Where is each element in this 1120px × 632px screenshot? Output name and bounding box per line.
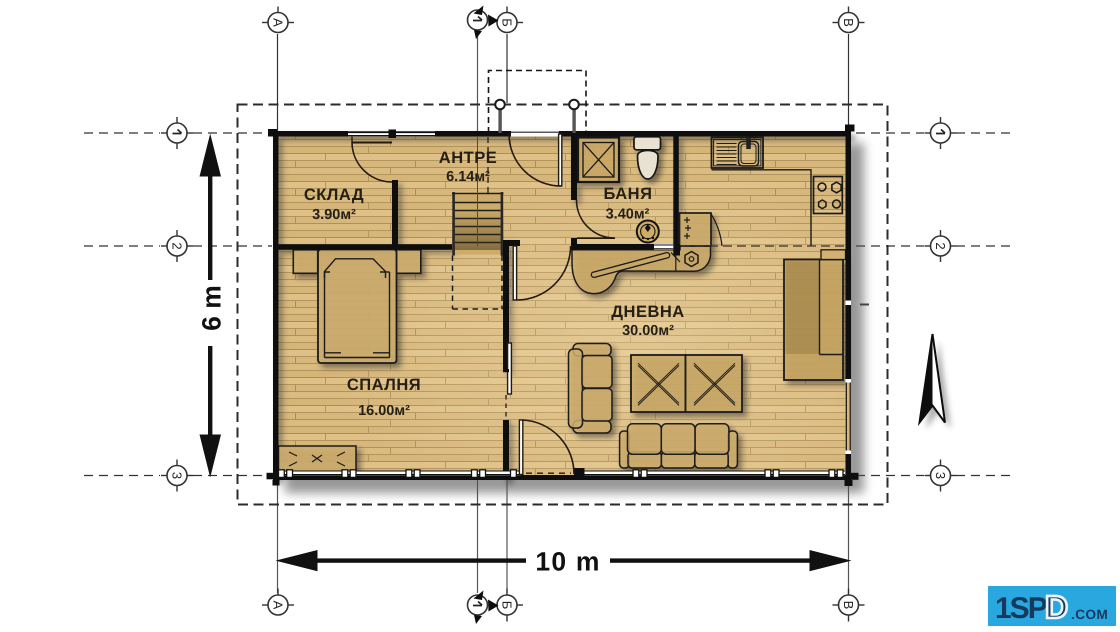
svg-text:А: А	[271, 18, 286, 27]
svg-text:ДНЕВНА: ДНЕВНА	[611, 303, 684, 321]
svg-text:БАНЯ: БАНЯ	[604, 185, 653, 203]
svg-text:АНТРЕ: АНТРЕ	[439, 149, 497, 167]
svg-text:3: 3	[170, 472, 185, 479]
svg-text:3.90м²: 3.90м²	[312, 207, 356, 223]
svg-text:30.00м²: 30.00м²	[622, 323, 674, 339]
svg-text:10 m: 10 m	[535, 547, 600, 577]
svg-text:3: 3	[933, 472, 948, 479]
svg-text:В: В	[841, 601, 856, 610]
svg-text:.COM: .COM	[1071, 607, 1108, 622]
svg-text:В: В	[841, 18, 856, 27]
svg-text:3.40м²: 3.40м²	[606, 207, 650, 223]
svg-text:D: D	[1045, 589, 1068, 625]
svg-text:6.14м²: 6.14м²	[446, 169, 490, 185]
svg-text:2: 2	[933, 242, 948, 249]
svg-text:6 m: 6 m	[197, 285, 227, 331]
svg-text:Б: Б	[500, 18, 515, 27]
svg-text:Б: Б	[500, 601, 515, 610]
svg-text:СКЛАД: СКЛАД	[304, 186, 364, 204]
svg-text:16.00м²: 16.00м²	[358, 403, 410, 419]
svg-text:А: А	[271, 601, 286, 610]
svg-text:СПАЛНЯ: СПАЛНЯ	[347, 376, 421, 394]
svg-text:2: 2	[170, 242, 185, 249]
